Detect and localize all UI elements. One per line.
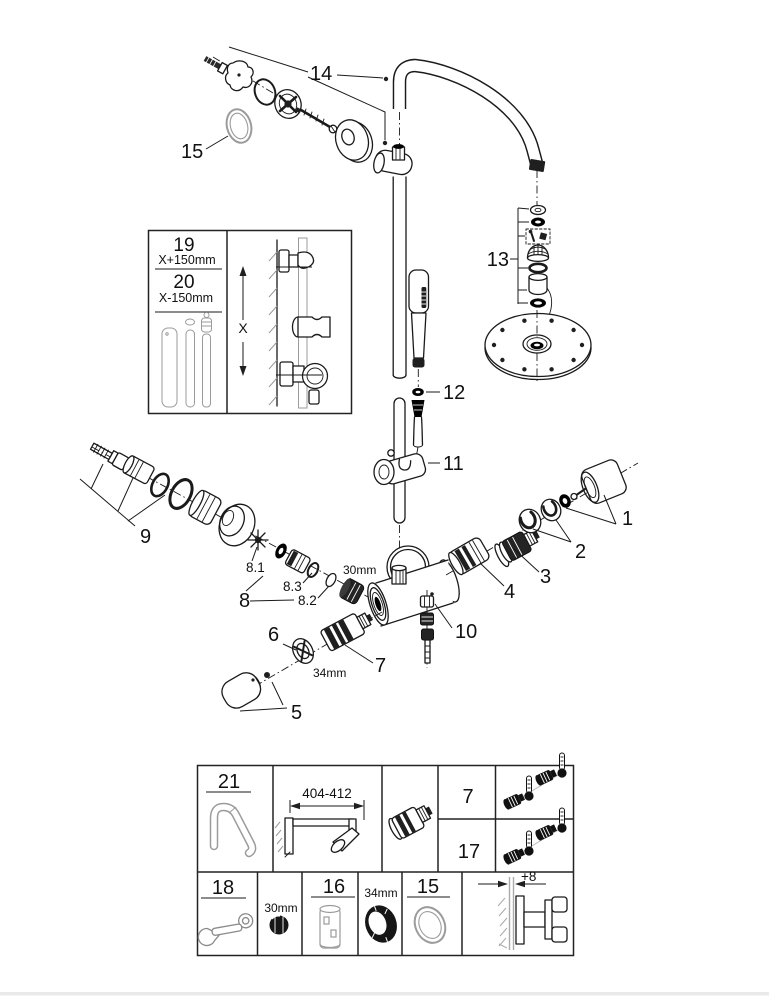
thermostat-valve-body [364,546,464,627]
callout-8-1: 8.1 [246,560,265,575]
table-16-label: 16 [323,876,345,898]
parts-table: 21 404-412 [196,753,574,956]
cartridge-image-icon [387,800,437,841]
page-footer-strip [0,992,769,996]
union-screw-icon [89,440,129,471]
long-screw-icon [301,109,337,133]
exploded-group-9: 9 [80,440,368,597]
table-15-label: 15 [417,876,439,898]
ring-nut-34-icon [360,901,402,947]
inset-box: 19 X+150mm 20 X-150mm [149,231,352,414]
top-bracket-icon [279,250,314,272]
exploded-group-14: 14 15 [181,47,388,166]
callout-2: 2 [575,541,586,563]
riser-union-nut-icon [392,565,406,584]
head-shower-disc-icon [485,310,591,384]
escutcheon-plate-icon [226,61,254,91]
arm-dimension-diagram [275,800,364,857]
sleeve-16-icon [320,906,340,949]
variant-icons-17 [502,808,567,866]
handle-group-5-6-7: 5 6 34mm 7 [218,607,387,724]
variant-icons-7 [502,753,567,811]
wrench-icon [196,913,256,947]
callout-13: 13 [487,249,509,271]
callout-9: 9 [140,526,151,548]
ring-15-icon [223,106,255,145]
table-404-dim: 404-412 [302,786,352,801]
strainer-dome-icon [528,245,549,261]
riser-tee-fitting [372,144,414,176]
ribbed-fitting-icon [285,549,312,574]
mounting-screw-icon [203,54,228,73]
callout-5: 5 [291,702,302,724]
rail-rods-icon [162,313,212,408]
oval-ring-15-icon [409,902,451,948]
size-30mm-label: 30mm [343,563,376,577]
callout-11: 11 [443,453,464,475]
callout-10: 10 [455,621,477,643]
table-30mm-label: 30mm [264,901,297,915]
inset-wall-diagram: X [238,238,330,408]
callout-12: 12 [443,382,465,404]
aquadimmer-cartridge-7-icon [320,607,377,652]
inset-20-dim: X-150mm [159,291,213,305]
cap-1-icon [577,458,629,507]
star-washer-icon [248,530,268,550]
hand-shower-group: 12 [409,270,465,458]
callout-8-2: 8.2 [298,593,317,608]
extension-plus8-diagram: +8 [478,869,567,950]
table-18-label: 18 [212,877,234,899]
ring-nut-6-icon [289,635,318,667]
table-17-label: 17 [458,841,480,863]
knob-5-icon [218,668,266,713]
shower-arm-21-icon [214,807,252,853]
table-plus8-dim: +8 [521,869,536,884]
callout-6: 6 [268,624,279,646]
inset-20-label: 20 [173,272,194,293]
table-21-label: 21 [218,771,240,793]
callout-8-3: 8.3 [283,579,302,594]
callout-14: 14 [310,63,332,85]
callout-15: 15 [181,141,203,163]
callout-1: 1 [622,508,633,530]
rail-slider-11: 11 [374,450,464,486]
callout-7: 7 [375,655,386,677]
table-7-label: 7 [462,786,473,808]
callout-8: 8 [239,590,250,612]
diagram-page: 14 15 [0,0,769,1000]
head-shower-group-13: 13 [485,170,591,384]
callout-3: 3 [540,566,551,588]
inset-x-dim: X [238,320,248,336]
exploded-parts-diagram: 14 15 [0,0,769,1000]
table-34mm-label: 34mm [364,886,397,900]
callout-4: 4 [504,581,515,603]
size-34mm-label: 34mm [313,666,346,680]
mid-slider-icon [293,317,331,337]
exploded-group-right: 4 3 2 [446,458,638,603]
fitting-group-8: 8.1 8.3 8.2 8 30mm [239,530,376,612]
inset-19-dim: X+150mm [158,253,215,267]
cup-sleeve-icon [529,274,547,295]
screw-1-icon [571,489,585,500]
nut-30-icon [270,916,289,935]
wall-flange-icon [330,116,377,167]
